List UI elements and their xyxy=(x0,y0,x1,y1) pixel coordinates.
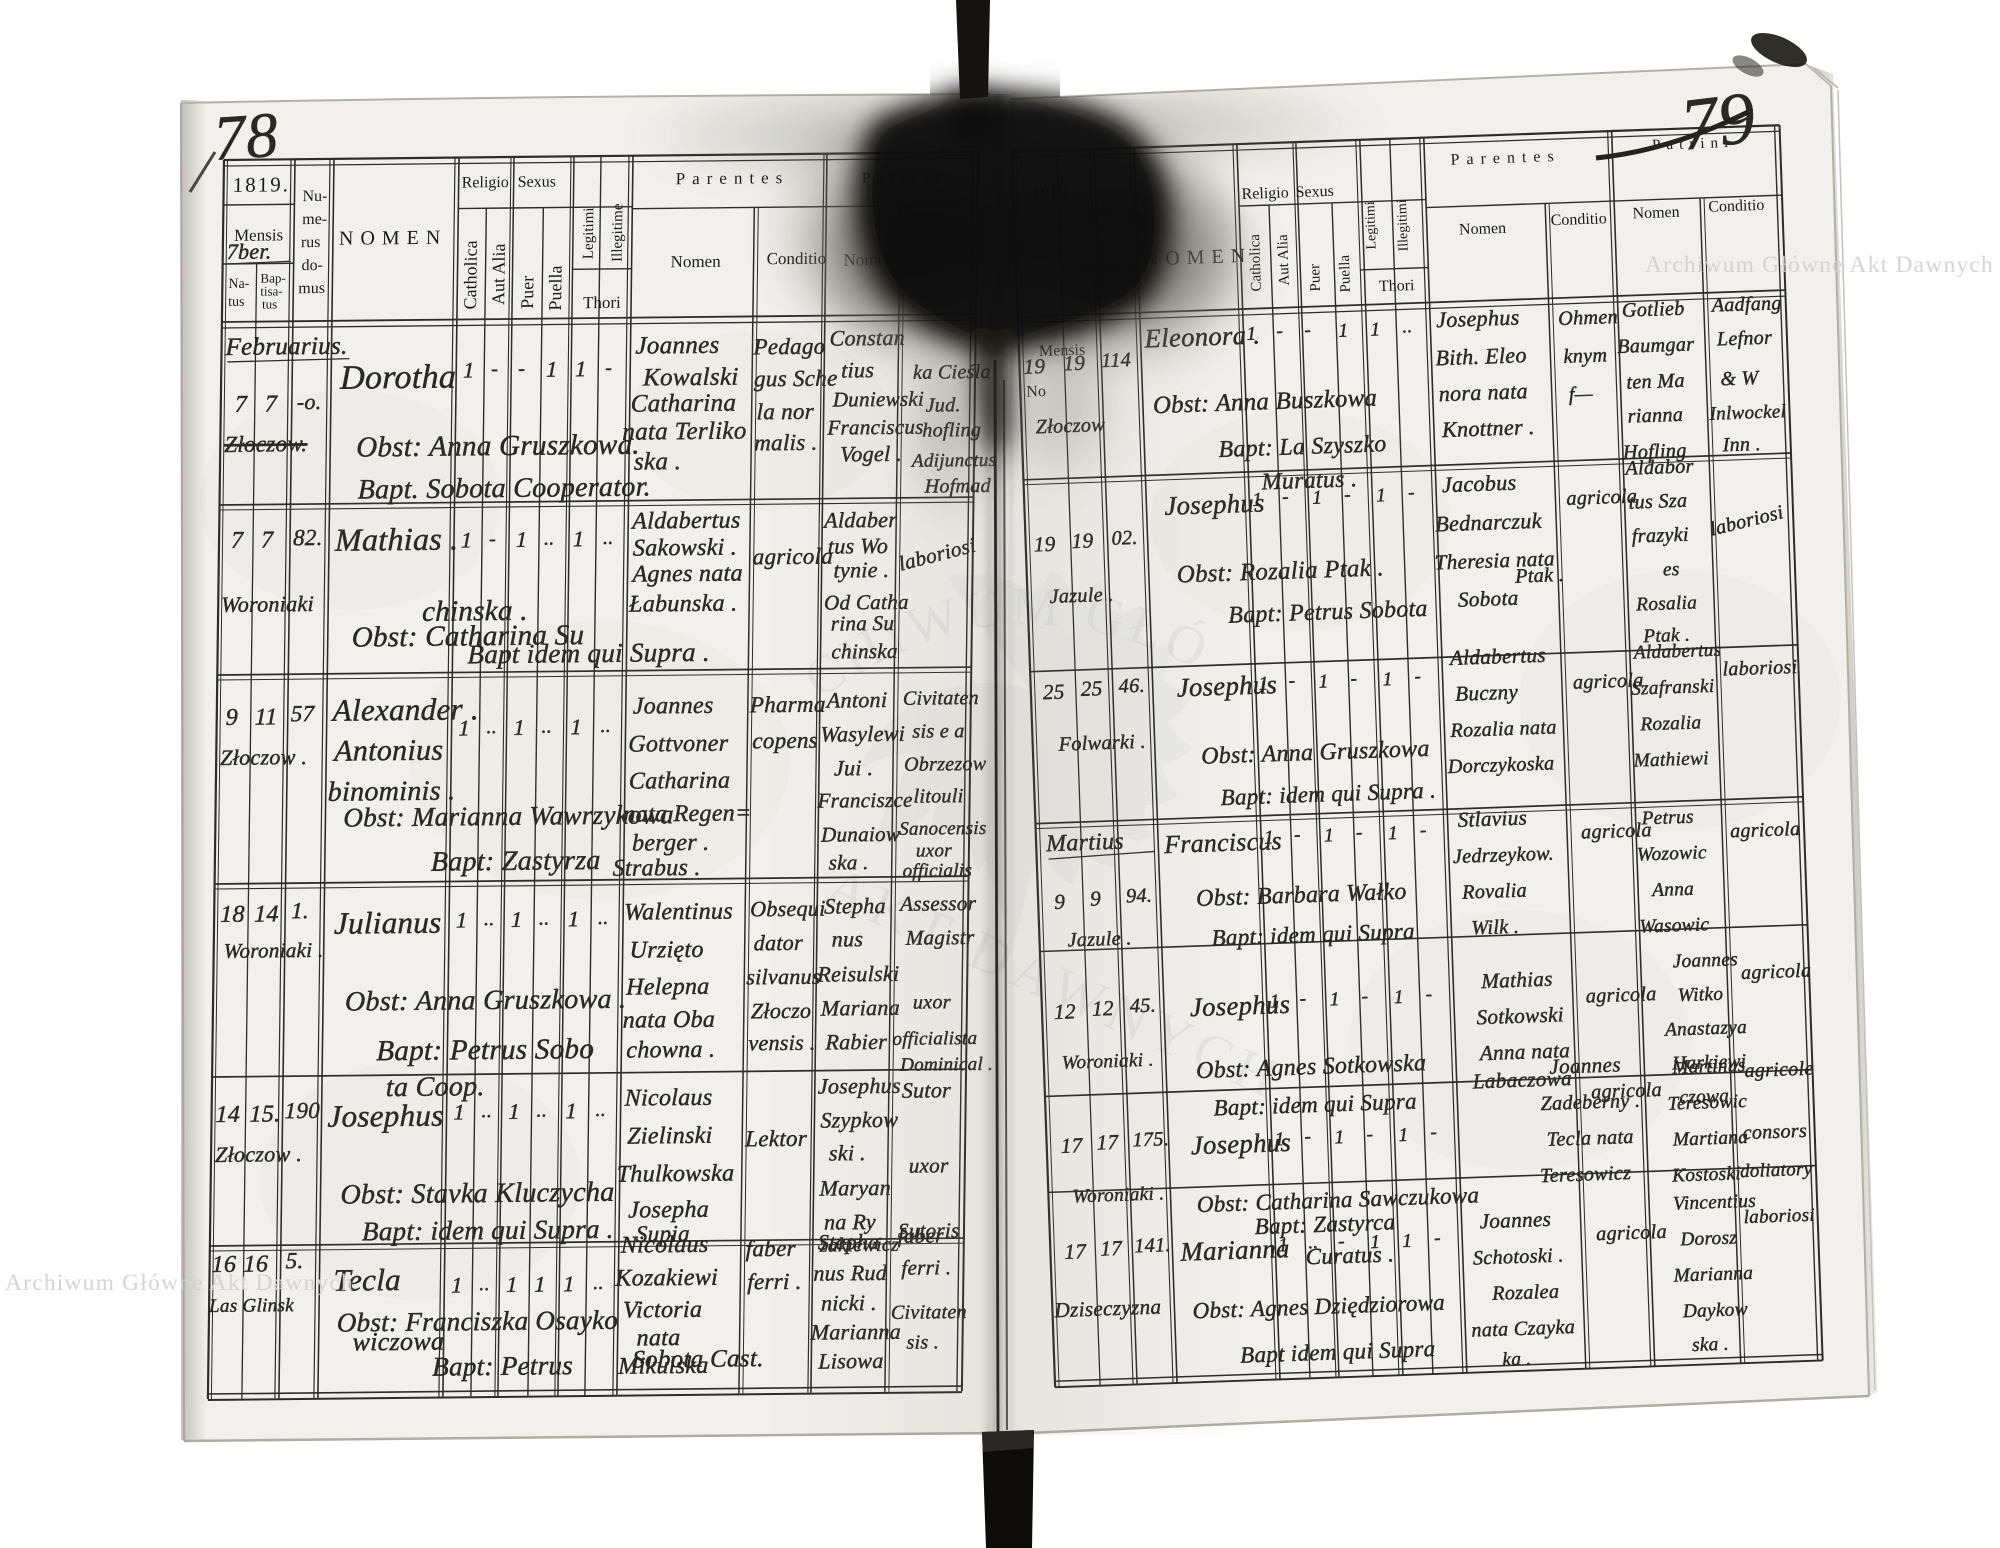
svg-text:knym: knym xyxy=(1563,344,1608,368)
svg-text:Joannes: Joannes xyxy=(1479,1207,1551,1233)
svg-text:1: 1 xyxy=(463,357,475,382)
svg-text:Agnes nata: Agnes nata xyxy=(630,560,743,587)
svg-text:Thori: Thori xyxy=(1379,277,1416,295)
svg-text:Stlavius: Stlavius xyxy=(1457,805,1527,831)
svg-text:..: .. xyxy=(484,908,495,930)
svg-text:Inlwockel: Inlwockel xyxy=(1708,401,1786,425)
svg-text:Woroniaki .: Woroniaki . xyxy=(224,938,324,963)
svg-text:me-: me- xyxy=(302,211,327,228)
svg-text:doliatory: doliatory xyxy=(1740,1159,1813,1183)
svg-text:Jedrzeykow.: Jedrzeykow. xyxy=(1452,843,1554,869)
svg-text:Joannes: Joannes xyxy=(1672,949,1738,972)
svg-text:..: .. xyxy=(539,907,550,929)
svg-text:1: 1 xyxy=(563,1271,575,1296)
svg-text:-: - xyxy=(491,358,498,380)
svg-text:Josepha: Josepha xyxy=(628,1197,709,1224)
svg-text:Legitimi: Legitimi xyxy=(581,207,598,259)
svg-text:tus Sza: tus Sza xyxy=(1628,490,1687,514)
svg-text:14: 14 xyxy=(254,901,279,927)
svg-text:-: - xyxy=(605,357,612,379)
svg-text:Wozowic: Wozowic xyxy=(1637,842,1708,865)
svg-text:f—: f— xyxy=(1568,383,1594,406)
svg-text:Nu-: Nu- xyxy=(302,188,327,205)
svg-text:Buczny: Buczny xyxy=(1455,680,1519,706)
svg-text:1: 1 xyxy=(1264,827,1275,848)
svg-text:-: - xyxy=(1350,668,1357,689)
svg-text:Aut Alia: Aut Alia xyxy=(1275,234,1293,286)
svg-text:1819.: 1819. xyxy=(233,172,291,197)
svg-text:Conditio: Conditio xyxy=(1550,210,1607,229)
svg-text:Mikulska: Mikulska xyxy=(617,1353,709,1380)
svg-text:Rovalia: Rovalia xyxy=(1461,879,1528,903)
svg-text:Inn .: Inn . xyxy=(1721,433,1761,456)
svg-text:Schotoski .: Schotoski . xyxy=(1473,1244,1564,1269)
svg-text:Kostoski: Kostoski xyxy=(1671,1163,1742,1186)
svg-text:Anna: Anna xyxy=(1650,879,1695,902)
svg-text:Thori: Thori xyxy=(583,293,621,312)
svg-text:nata Czayka: nata Czayka xyxy=(1471,1316,1575,1342)
svg-text:-: - xyxy=(518,358,525,380)
svg-text:1: 1 xyxy=(1324,825,1335,846)
svg-text:Ptak .: Ptak . xyxy=(1514,564,1565,588)
svg-text:Las Glinsk: Las Glinsk xyxy=(208,1295,294,1317)
svg-text:Puella: Puella xyxy=(545,265,566,310)
svg-text:1: 1 xyxy=(1318,671,1329,692)
svg-text:Witko: Witko xyxy=(1677,984,1723,1007)
svg-text:chinska .: chinska . xyxy=(422,595,528,628)
svg-text:tus: tus xyxy=(228,295,245,310)
svg-text:Julianus: Julianus xyxy=(334,905,442,941)
svg-text:-: - xyxy=(1304,320,1311,341)
svg-text:Aut Alia: Aut Alia xyxy=(488,243,509,305)
svg-text:Lefnor: Lefnor xyxy=(1716,327,1773,351)
svg-text:Baumgar: Baumgar xyxy=(1617,333,1695,358)
svg-text:1: 1 xyxy=(511,907,523,932)
svg-text:14: 14 xyxy=(215,1102,240,1128)
svg-text:nora nata: nora nata xyxy=(1438,378,1528,406)
svg-text:Bapt: Petrus: Bapt: Petrus xyxy=(432,1350,573,1381)
svg-text:Martiana: Martiana xyxy=(1672,1127,1749,1151)
svg-text:..: .. xyxy=(598,907,609,929)
svg-text:Josephus: Josephus xyxy=(1436,304,1520,332)
svg-text:Nicolaus: Nicolaus xyxy=(620,1232,709,1259)
svg-text:do-: do- xyxy=(302,257,324,274)
svg-text:9: 9 xyxy=(226,705,239,731)
svg-text:Illegitimi: Illegitimi xyxy=(1395,199,1412,252)
svg-text:Aadfang: Aadfang xyxy=(1709,292,1782,316)
svg-text:wiczowa: wiczowa xyxy=(352,1327,444,1357)
svg-text:..: .. xyxy=(1308,1232,1319,1253)
svg-text:Rozalea: Rozalea xyxy=(1491,1281,1560,1305)
svg-text:1: 1 xyxy=(1329,989,1340,1010)
svg-text:Helepna: Helepna xyxy=(625,974,710,1001)
svg-text:1: 1 xyxy=(1370,1232,1381,1253)
svg-text:Zielinski: Zielinski xyxy=(627,1123,713,1150)
svg-text:agricola: agricola xyxy=(1730,818,1801,842)
svg-text:-: - xyxy=(1304,1126,1311,1147)
svg-text:agricola: agricola xyxy=(1741,960,1812,984)
svg-text:chowna .: chowna . xyxy=(626,1037,715,1064)
svg-text:Archiwum Główne Akt Dawnych: Archiwum Główne Akt Dawnych xyxy=(1645,252,1994,278)
svg-text:Religio: Religio xyxy=(462,174,509,191)
svg-text:1: 1 xyxy=(516,527,528,552)
svg-text:Puella: Puella xyxy=(1337,254,1354,292)
svg-text:Sakowski .: Sakowski . xyxy=(633,535,738,562)
svg-text:Jacobus: Jacobus xyxy=(1441,470,1516,498)
svg-text:mus: mus xyxy=(298,280,325,297)
svg-text:18: 18 xyxy=(220,902,245,928)
svg-text:Knottner .: Knottner . xyxy=(1441,414,1535,442)
svg-text:Gotlieb: Gotlieb xyxy=(1622,298,1685,322)
svg-text:7ber.: 7ber. xyxy=(227,238,272,263)
svg-text:..: .. xyxy=(593,1272,604,1294)
svg-text:nata: nata xyxy=(636,1325,680,1351)
svg-text:Illegitime: Illegitime xyxy=(610,203,627,262)
svg-text:1: 1 xyxy=(1382,669,1393,690)
svg-text:1: 1 xyxy=(1278,1235,1289,1256)
svg-text:Urzięto: Urzięto xyxy=(629,937,703,964)
svg-text:11: 11 xyxy=(255,704,278,730)
svg-text:laboriosi: laboriosi xyxy=(1743,1205,1815,1228)
svg-text:ten Ma: ten Ma xyxy=(1626,370,1685,394)
svg-text:agricola: agricola xyxy=(1566,485,1638,509)
svg-text:Nomen: Nomen xyxy=(670,252,721,272)
svg-text:Aldabertus: Aldabertus xyxy=(630,508,741,535)
svg-text:rus: rus xyxy=(301,234,321,251)
svg-text:-: - xyxy=(1366,1124,1373,1145)
svg-text:-: - xyxy=(1299,988,1306,1009)
svg-text:1: 1 xyxy=(1370,319,1381,340)
svg-text:..: .. xyxy=(544,527,555,549)
svg-text:Marianna: Marianna xyxy=(1672,1263,1753,1287)
svg-text:..: .. xyxy=(595,1099,606,1121)
svg-text:1: 1 xyxy=(456,907,468,932)
svg-text:1: 1 xyxy=(568,906,580,931)
svg-text:1: 1 xyxy=(1269,991,1280,1012)
svg-text:78: 78 xyxy=(211,99,280,174)
svg-text:Puer: Puer xyxy=(1307,264,1324,292)
svg-text:1: 1 xyxy=(546,356,558,381)
svg-text:-: - xyxy=(1288,670,1295,691)
svg-text:Sexus: Sexus xyxy=(518,174,556,191)
svg-text:NOMEN: NOMEN xyxy=(339,227,448,250)
svg-text:1: 1 xyxy=(1258,673,1269,694)
svg-text:-: - xyxy=(1434,1228,1441,1249)
svg-text:..: .. xyxy=(1402,316,1413,337)
svg-text:-: - xyxy=(1414,666,1421,687)
svg-text:Kozakiewi: Kozakiewi xyxy=(614,1265,718,1292)
svg-text:-: - xyxy=(1338,1231,1345,1252)
svg-text:1: 1 xyxy=(573,526,585,551)
svg-text:-: - xyxy=(1276,321,1283,342)
svg-text:Sobota: Sobota xyxy=(1457,586,1518,612)
svg-text:Łabunska .: Łabunska . xyxy=(628,591,738,618)
svg-text:Bith. Eleo: Bith. Eleo xyxy=(1435,342,1527,370)
svg-text:Aldabor: Aldabor xyxy=(1623,455,1694,479)
svg-text:tus: tus xyxy=(262,296,277,311)
svg-text:agricole: agricole xyxy=(1744,1058,1814,1082)
svg-text:1.: 1. xyxy=(291,898,309,923)
svg-text:79: 79 xyxy=(1676,76,1760,166)
svg-text:1: 1 xyxy=(534,1271,546,1296)
svg-text:Wasowic: Wasowic xyxy=(1639,914,1710,937)
svg-text:Bednarczuk: Bednarczuk xyxy=(1435,508,1543,537)
svg-text:Victoria: Victoria xyxy=(623,1297,703,1324)
svg-text:-: - xyxy=(1356,822,1363,843)
svg-text:Catholica: Catholica xyxy=(460,240,481,309)
svg-text:Legitimi: Legitimi xyxy=(1363,201,1380,250)
svg-text:1: 1 xyxy=(1402,1231,1413,1252)
svg-text:Conditio: Conditio xyxy=(1708,197,1765,216)
svg-text:ska .: ska . xyxy=(1692,1334,1730,1356)
svg-text:..: .. xyxy=(603,527,614,549)
svg-text:Nomen: Nomen xyxy=(1459,220,1507,239)
svg-text:Daykow: Daykow xyxy=(1682,1299,1749,1322)
svg-text:Nomen: Nomen xyxy=(1632,204,1680,223)
svg-text:Dorosz: Dorosz xyxy=(1679,1227,1738,1250)
svg-text:Archiwum Główne Akt Dawnych: Archiwum Główne Akt Dawnych xyxy=(5,1270,354,1296)
svg-text:Sexus: Sexus xyxy=(1295,183,1334,201)
svg-text:Februarius.: Februarius. xyxy=(224,333,347,361)
svg-text:Thulkowska: Thulkowska xyxy=(617,1161,735,1188)
svg-text:Teresowic: Teresowic xyxy=(1667,1091,1747,1115)
svg-text:1: 1 xyxy=(575,356,587,381)
svg-text:Walentinus: Walentinus xyxy=(624,899,733,926)
svg-text:1: 1 xyxy=(565,1098,577,1123)
svg-text:ka .: ka . xyxy=(1502,1349,1532,1371)
svg-text:1: 1 xyxy=(1274,1129,1285,1150)
svg-text:Obst: Anna Gruszkowa .: Obst: Anna Gruszkowa . xyxy=(345,984,627,1018)
svg-text:Na-: Na- xyxy=(228,277,250,292)
svg-text:1: 1 xyxy=(1338,320,1349,341)
svg-text:1: 1 xyxy=(1388,823,1399,844)
svg-text:nata Oba: nata Oba xyxy=(623,1007,716,1034)
svg-text:& W: & W xyxy=(1720,367,1761,390)
svg-text:7: 7 xyxy=(235,392,248,418)
svg-text:Ohmen: Ohmen xyxy=(1558,306,1619,330)
svg-text:Puer: Puer xyxy=(517,276,537,309)
svg-text:Curatus .: Curatus . xyxy=(1305,1241,1394,1269)
svg-text:-: - xyxy=(1294,824,1301,845)
svg-text:agricola: agricola xyxy=(1596,1221,1668,1245)
svg-text:consors: consors xyxy=(1742,1120,1807,1144)
svg-text:15.: 15. xyxy=(249,1101,280,1127)
svg-text:-: - xyxy=(1420,820,1427,841)
svg-text:57: 57 xyxy=(291,701,316,726)
svg-text:Złoczow .: Złoczow . xyxy=(220,744,307,770)
svg-text:rianna: rianna xyxy=(1627,404,1683,428)
svg-text:Nicolaus: Nicolaus xyxy=(624,1085,713,1112)
svg-text:frazyki: frazyki xyxy=(1631,524,1689,548)
svg-text:1: 1 xyxy=(1334,1127,1345,1148)
